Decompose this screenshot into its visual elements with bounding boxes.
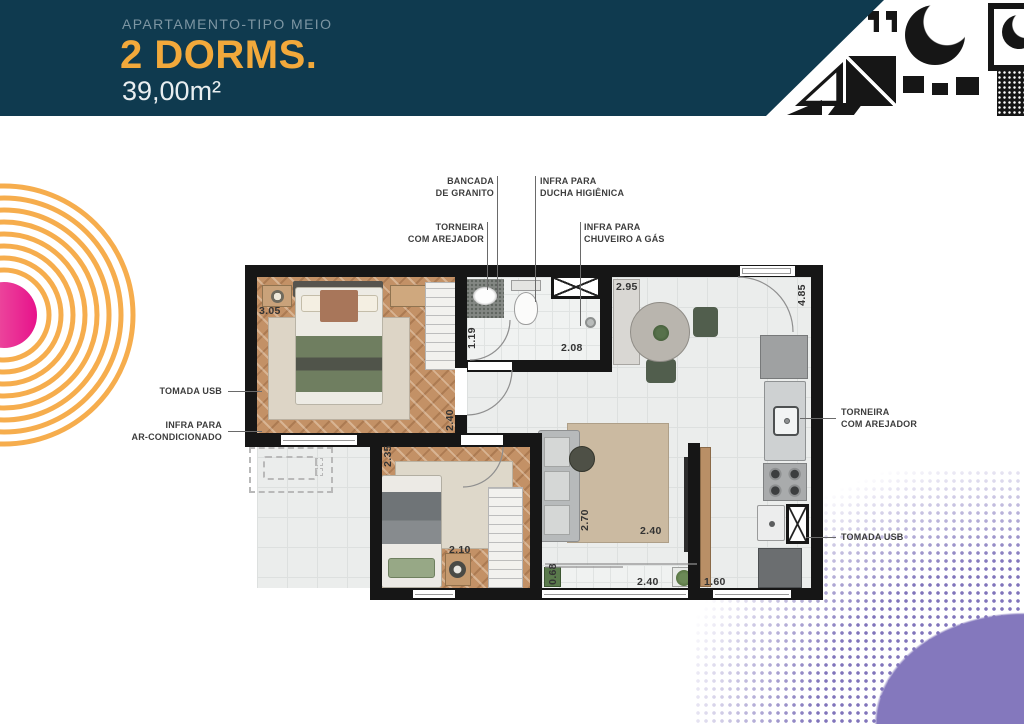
callout-torneira-arejador-top: TORNEIRA COM AREJADOR bbox=[408, 222, 484, 245]
pattern-quote-icon bbox=[868, 11, 879, 32]
leader-line bbox=[580, 222, 581, 326]
callout-torneira-arejador-right: TORNEIRA COM AREJADOR bbox=[841, 407, 917, 430]
callout-tomada-usb-right: TOMADA USB bbox=[841, 532, 904, 544]
measure-balcony-width: 2.40 bbox=[637, 576, 659, 588]
square-icon bbox=[956, 77, 979, 95]
square-diagonal-icon bbox=[846, 56, 896, 106]
measure-balcony-depth: 0.68 bbox=[547, 563, 559, 585]
crescent-moon-icon bbox=[1002, 15, 1024, 49]
callout-infra-ar-condicionado: INFRA PARA AR-CONDICIONADO bbox=[132, 420, 223, 443]
leader-line bbox=[228, 431, 262, 432]
framed-crescent-icon bbox=[988, 3, 1024, 71]
callout-infra-chuveiro-gas: INFRA PARA CHUVEIRO A GÁS bbox=[584, 222, 665, 245]
pink-dot-icon bbox=[0, 282, 37, 348]
optional-chair bbox=[315, 458, 323, 466]
door-arcs bbox=[245, 265, 823, 600]
measure-bedroom2-width: 2.10 bbox=[449, 544, 471, 556]
measure-living-width: 2.40 bbox=[640, 525, 662, 537]
leader-line bbox=[487, 222, 488, 290]
measure-kitchen-width: 1.60 bbox=[704, 576, 726, 588]
halftone-core bbox=[789, 549, 1024, 724]
measure-bath-length: 2.08 bbox=[561, 342, 583, 354]
apartment-type-subtitle: APARTAMENTO-TIPO MEIO bbox=[122, 16, 332, 32]
leader-line bbox=[800, 418, 836, 419]
optional-chair bbox=[315, 468, 323, 476]
square-icon bbox=[903, 76, 924, 93]
measure-bedroom1-door: 2.40 bbox=[444, 409, 456, 431]
optional-furniture-zone bbox=[249, 447, 333, 493]
leader-line bbox=[497, 176, 498, 298]
leader-line bbox=[806, 537, 836, 538]
leader-line bbox=[228, 391, 262, 392]
pattern-quote-icon bbox=[886, 11, 897, 32]
measure-living-depth: 2.70 bbox=[579, 509, 591, 531]
rings-decoration bbox=[0, 175, 150, 460]
measure-bedroom1-width: 3.05 bbox=[259, 305, 281, 317]
apartment-area: 39,00m² bbox=[122, 76, 221, 107]
optional-table bbox=[263, 456, 317, 480]
measure-right-height: 4.85 bbox=[796, 284, 808, 306]
page: APARTAMENTO-TIPO MEIO 2 DORMS. 39,00m² bbox=[0, 0, 1024, 724]
measure-dining-width: 2.95 bbox=[616, 281, 638, 293]
square-icon bbox=[932, 83, 948, 95]
leader-line bbox=[535, 176, 536, 302]
floor-plan: 3.05 2.40 1.19 2.08 2.95 4.85 2.35 2.10 … bbox=[245, 265, 823, 600]
page-title: 2 DORMS. bbox=[120, 33, 317, 78]
measure-bath-width: 1.19 bbox=[466, 327, 478, 349]
callout-infra-ducha: INFRA PARA DUCHA HIGIÊNICA bbox=[540, 176, 624, 199]
callout-tomada-usb-left: TOMADA USB bbox=[160, 386, 223, 398]
measure-bedroom2-height: 2.35 bbox=[382, 445, 394, 467]
halftone-square-icon bbox=[997, 70, 1024, 116]
callout-bancada-granito: BANCADA DE GRANITO bbox=[436, 176, 494, 199]
crescent-moon-icon bbox=[905, 5, 965, 65]
